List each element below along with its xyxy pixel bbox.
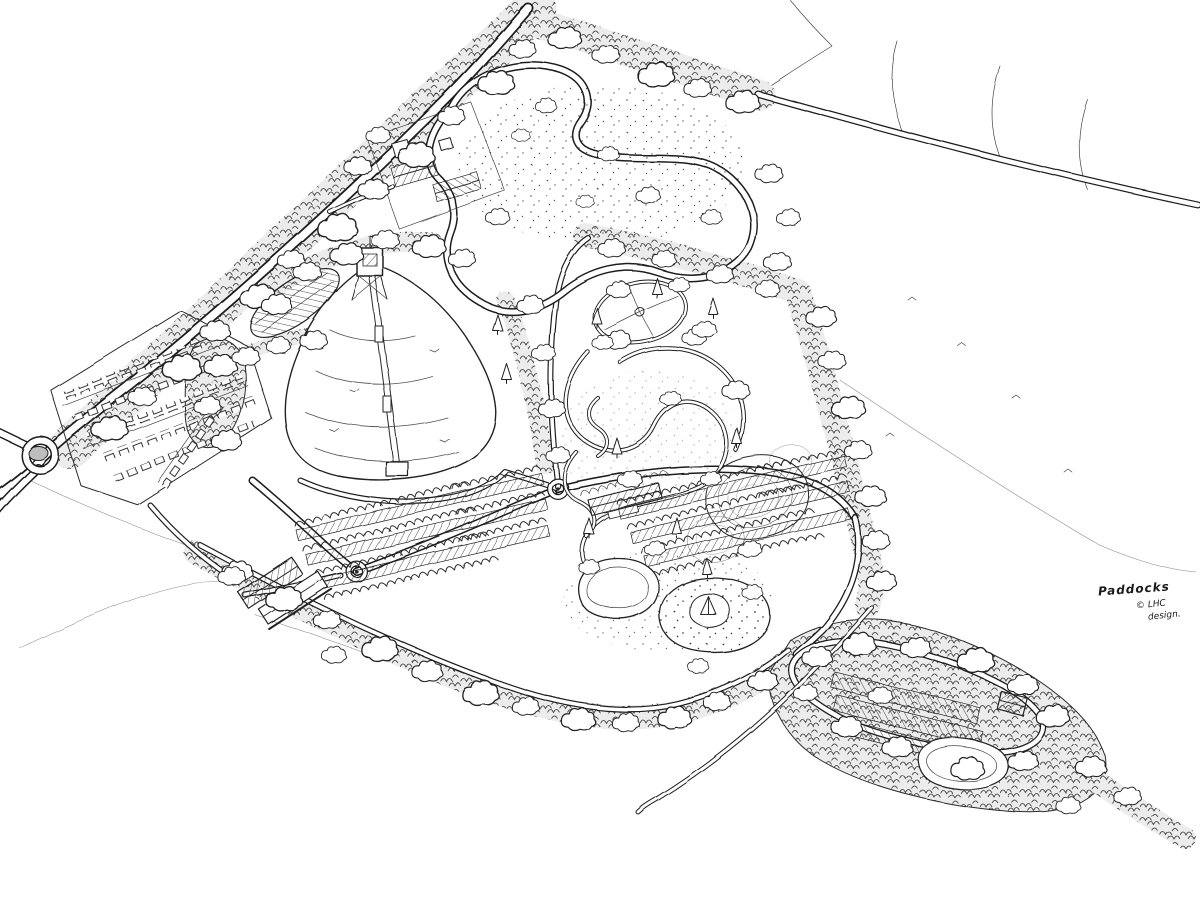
car-park	[35, 292, 287, 521]
site-roundabout	[25, 440, 55, 470]
masterplan-sketch: Hand-drawn aerial masterplan sketch of a…	[0, 0, 1200, 909]
lift-bottom-station	[386, 462, 408, 476]
